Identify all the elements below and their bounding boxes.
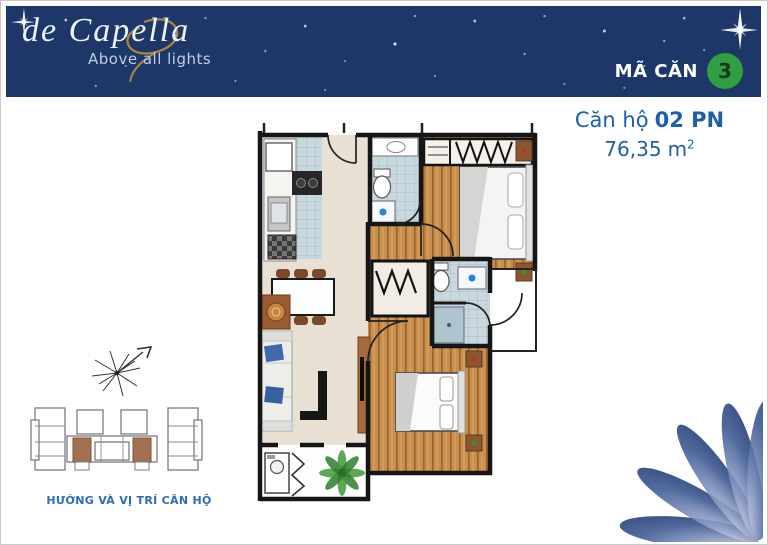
highlighted-unit	[133, 438, 151, 462]
floor-plan	[252, 111, 544, 507]
site-plan	[29, 398, 204, 486]
locator-caption: HƯỚNG VÀ VỊ TRÍ CĂN HỘ	[19, 494, 239, 507]
chair	[294, 316, 308, 325]
highlighted-unit	[73, 438, 91, 462]
unit-type-prefix: Căn hộ	[575, 108, 649, 132]
toilet	[374, 176, 391, 198]
dimension-ticks	[264, 123, 532, 133]
pillow	[440, 377, 453, 401]
plant-icon	[319, 450, 365, 496]
cushion	[264, 344, 284, 362]
unit-locator	[19, 346, 239, 491]
unit-code-label: MÃ CĂN	[615, 61, 698, 82]
chair	[312, 316, 326, 325]
tv	[360, 357, 364, 401]
chair	[294, 269, 308, 278]
pillow	[440, 405, 453, 429]
cushion	[264, 386, 284, 404]
brand-logo: de Capella Above all lights	[22, 8, 252, 96]
brochure-page: de Capella Above all lights MÃ CĂN 3 Căn…	[0, 0, 768, 545]
logo-tagline: Above all lights	[88, 50, 252, 68]
logo-text: de Capella	[22, 8, 252, 54]
chair	[312, 269, 326, 278]
chair	[276, 269, 290, 278]
ac-ledge-floor	[491, 270, 536, 350]
shower-drain	[469, 275, 476, 282]
unit-type-value: 02 PN	[655, 108, 725, 132]
unit-area: 76,35m2	[552, 137, 747, 161]
toilet	[433, 271, 449, 292]
wardrobe-2	[372, 261, 428, 316]
unit-code: MÃ CĂN 3	[615, 53, 743, 89]
unit-area-value: 76,35	[604, 137, 661, 161]
unit-area-unit: m	[668, 137, 687, 161]
pillow	[508, 173, 523, 207]
unit-type: Căn hộ02 PN	[552, 108, 747, 132]
pillow	[508, 215, 523, 249]
brand-header: de Capella Above all lights MÃ CĂN 3	[6, 6, 761, 97]
unit-info: Căn hộ02 PN 76,35m2	[552, 108, 747, 161]
floor-mat	[268, 235, 296, 259]
shower-drain	[380, 209, 387, 216]
lotus-petals-icon	[585, 380, 763, 542]
sparkle-star-icon	[720, 8, 758, 50]
compass-icon	[77, 346, 157, 401]
unit-area-exponent: 2	[687, 137, 695, 151]
fridge	[266, 143, 292, 171]
unit-code-badge: 3	[707, 53, 743, 89]
